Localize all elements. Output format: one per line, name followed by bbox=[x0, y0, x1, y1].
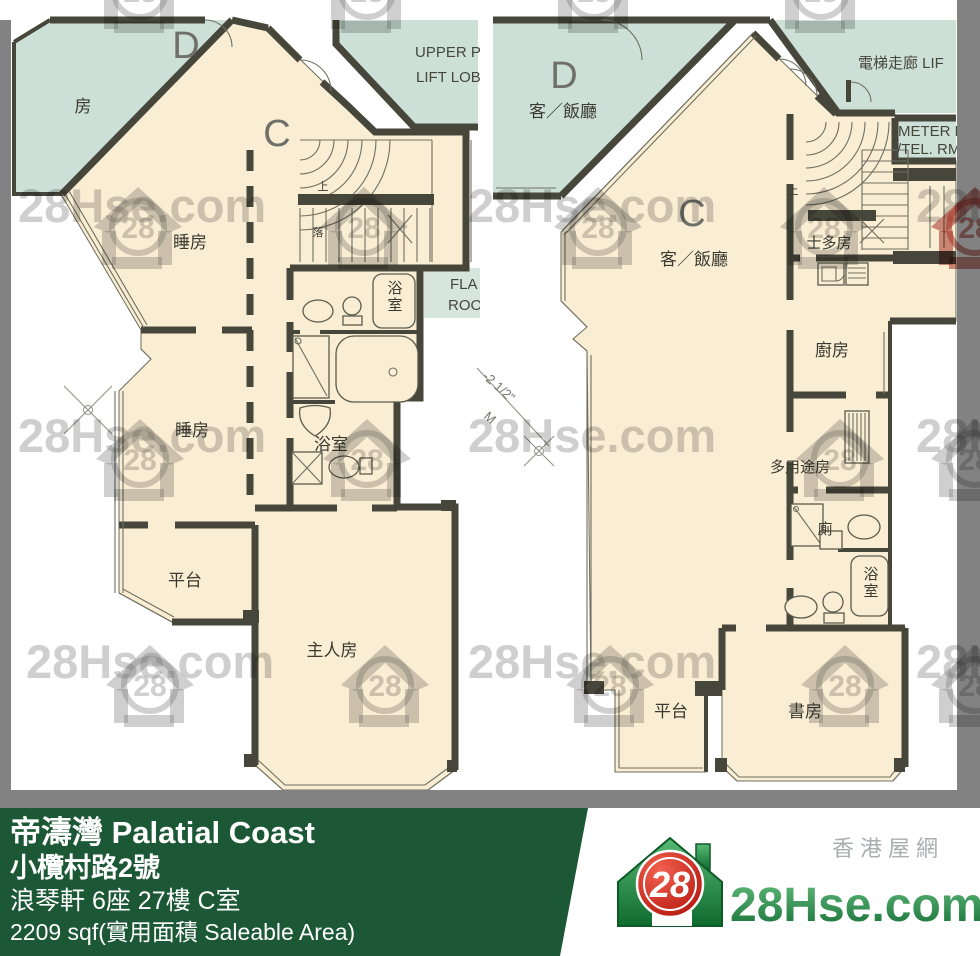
room-label: 書房 bbox=[788, 702, 822, 721]
bottom-frame-strip bbox=[0, 790, 980, 808]
upper-floor-plan: D 客／飯廳 電梯走廊 LIF METER R /TEL. RM C 客／飯廳 … bbox=[493, 20, 966, 781]
room-label: 多用途房 bbox=[770, 459, 830, 476]
left-frame-strip bbox=[0, 20, 11, 790]
28hse-logo-icon: 28 28Hse.com 香港屋網 bbox=[608, 826, 980, 946]
room-label: 浴室 bbox=[314, 435, 348, 454]
utility-fixtures bbox=[845, 411, 869, 463]
footer: 帝濤灣 Palatial Coast 小欖村路2號 浪琴軒 6座 27樓 C室 … bbox=[0, 808, 980, 956]
room-label: 廁 bbox=[817, 520, 832, 538]
site-logo[interactable]: 28 28Hse.com 香港屋網 bbox=[608, 826, 980, 946]
room-label: 廚房 bbox=[815, 340, 849, 360]
room-label: 平台 bbox=[168, 571, 202, 590]
stair-down-label: 落 bbox=[313, 226, 324, 239]
flat-roof-label: ROO bbox=[448, 297, 482, 314]
meter-room-label: METER R bbox=[898, 123, 966, 140]
room-label: 客／飯廳 bbox=[660, 250, 728, 269]
room-label: 睡房 bbox=[173, 233, 207, 252]
room-label: 客／飯廳 bbox=[529, 102, 597, 121]
room-label: 浴室 bbox=[386, 280, 403, 314]
flat-roof-label: FLA bbox=[450, 276, 478, 293]
kitchen-fixtures bbox=[818, 263, 868, 285]
dimension-annotation: -2 1/2" M bbox=[477, 368, 554, 466]
unit-label-d: D bbox=[172, 25, 199, 67]
lift-corridor-label: 電梯走廊 LIF bbox=[858, 55, 944, 72]
logo-badge-number: 28 bbox=[649, 864, 690, 905]
floor-plan-drawing: D 房 C UPPER P LIFT LOB 睡房 上 落 浴室 FLA ROO… bbox=[0, 0, 980, 810]
dimension-text: M bbox=[481, 408, 499, 426]
lobby-label: LIFT LOB bbox=[416, 69, 481, 86]
room-label: 房 bbox=[75, 97, 92, 116]
room-label: 平台 bbox=[654, 702, 688, 721]
room-label: 主人房 bbox=[307, 641, 358, 660]
right-frame-strip bbox=[957, 0, 980, 790]
unit-label-d: D bbox=[550, 55, 577, 97]
floor-plan-page: D 房 C UPPER P LIFT LOB 睡房 上 落 浴室 FLA ROO… bbox=[0, 0, 980, 956]
survey-marker bbox=[64, 386, 112, 434]
lobby-label: UPPER P bbox=[415, 44, 481, 61]
lower-floor-plan: D 房 C UPPER P LIFT LOB 睡房 上 落 浴室 FLA ROO… bbox=[14, 20, 482, 790]
meter-room-label: /TEL. RM bbox=[897, 141, 960, 158]
room-label: 睡房 bbox=[175, 421, 209, 440]
stair-up-label: 上 bbox=[318, 180, 329, 193]
room-label: 士多房 bbox=[806, 235, 851, 252]
logo-site-name: 28Hse.com bbox=[730, 879, 980, 932]
logo-tagline: 香港屋網 bbox=[832, 836, 944, 861]
dimension-text: -2 1/2" bbox=[480, 368, 518, 405]
room-label: 浴室 bbox=[862, 566, 879, 600]
stair-up-label: 上 bbox=[788, 184, 799, 197]
unit-label-c: C bbox=[263, 113, 290, 155]
unit-label-c: C bbox=[678, 193, 705, 235]
